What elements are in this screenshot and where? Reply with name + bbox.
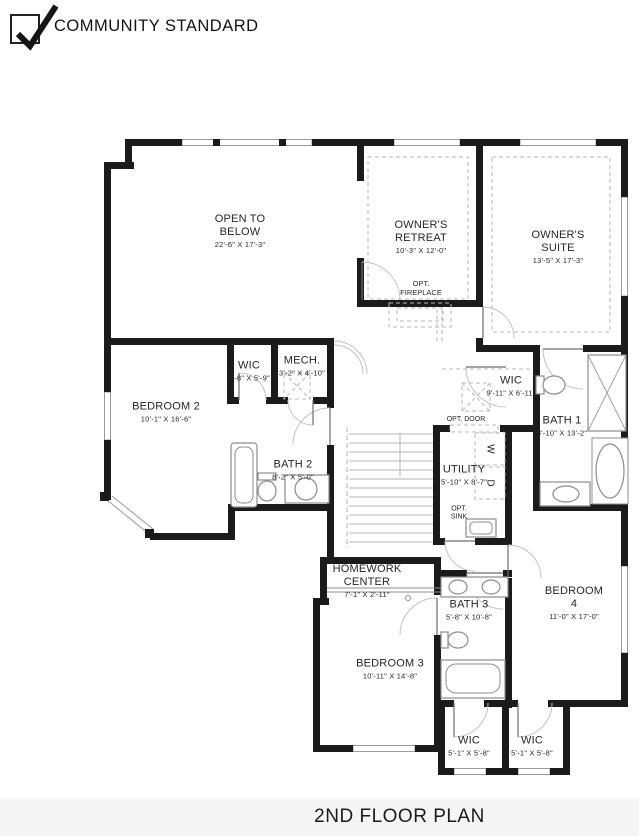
window [622,197,628,296]
retreat-tray-ceiling [368,157,468,299]
door-arc-bedroom3 [400,598,437,635]
stair-treads [349,434,433,542]
washer-box [475,433,505,465]
bay-window [107,500,149,534]
arch-opening [334,345,363,374]
opt-fireplace-box-inner [397,308,443,321]
door-arc-bedroom2 [293,408,330,445]
bath3-sink-left [449,580,467,594]
bath2-sink [295,478,317,500]
opt-door-opening [450,425,498,432]
door-arc-bedroom4 [508,545,541,578]
bath1-shower [588,355,626,431]
floor-plan-svg [0,0,639,836]
wic-owners-island [462,383,490,411]
window [353,746,415,752]
bath2-toilet-tank [258,473,276,480]
windows [105,140,628,775]
walls [100,139,628,775]
door-arc-suite [483,307,514,338]
door-arc-utility [445,541,475,571]
door-arc-wic-bedroom4 [518,703,552,737]
door-arc-wic-bedroom2 [239,373,266,400]
homework-counter [327,588,441,601]
window [454,769,486,775]
window [518,769,550,775]
floor-plan-page: COMMUNITY STANDARD [0,0,639,836]
bath2-toilet [258,481,276,501]
window [394,140,460,146]
bath1-toilet [543,376,565,394]
window [182,140,312,146]
bay-window [112,496,153,529]
plan-title: 2ND FLOOR PLAN [160,806,639,828]
door-arc-mech [288,400,313,425]
door-arc-wic-owners [466,367,506,407]
utility-opt-sink [466,519,496,537]
stairs [347,427,433,548]
bath3-toilet-tank [441,632,448,648]
door-arc-wic-bedroom3 [454,703,488,737]
window [622,566,628,653]
dryer-box [475,467,505,499]
bath1-tub [596,444,624,498]
bath3-tub-inner [446,664,500,693]
suite-tray-ceiling [492,157,610,332]
fixtures [231,355,628,698]
window [520,140,596,146]
window [105,392,111,440]
bath2-tub-inner [235,447,253,503]
bath1-sink [553,486,579,502]
arch-opening [334,341,367,374]
bath3-toilet [448,632,468,648]
bath3-sink-right [482,580,500,594]
mech-equipment [284,373,310,399]
